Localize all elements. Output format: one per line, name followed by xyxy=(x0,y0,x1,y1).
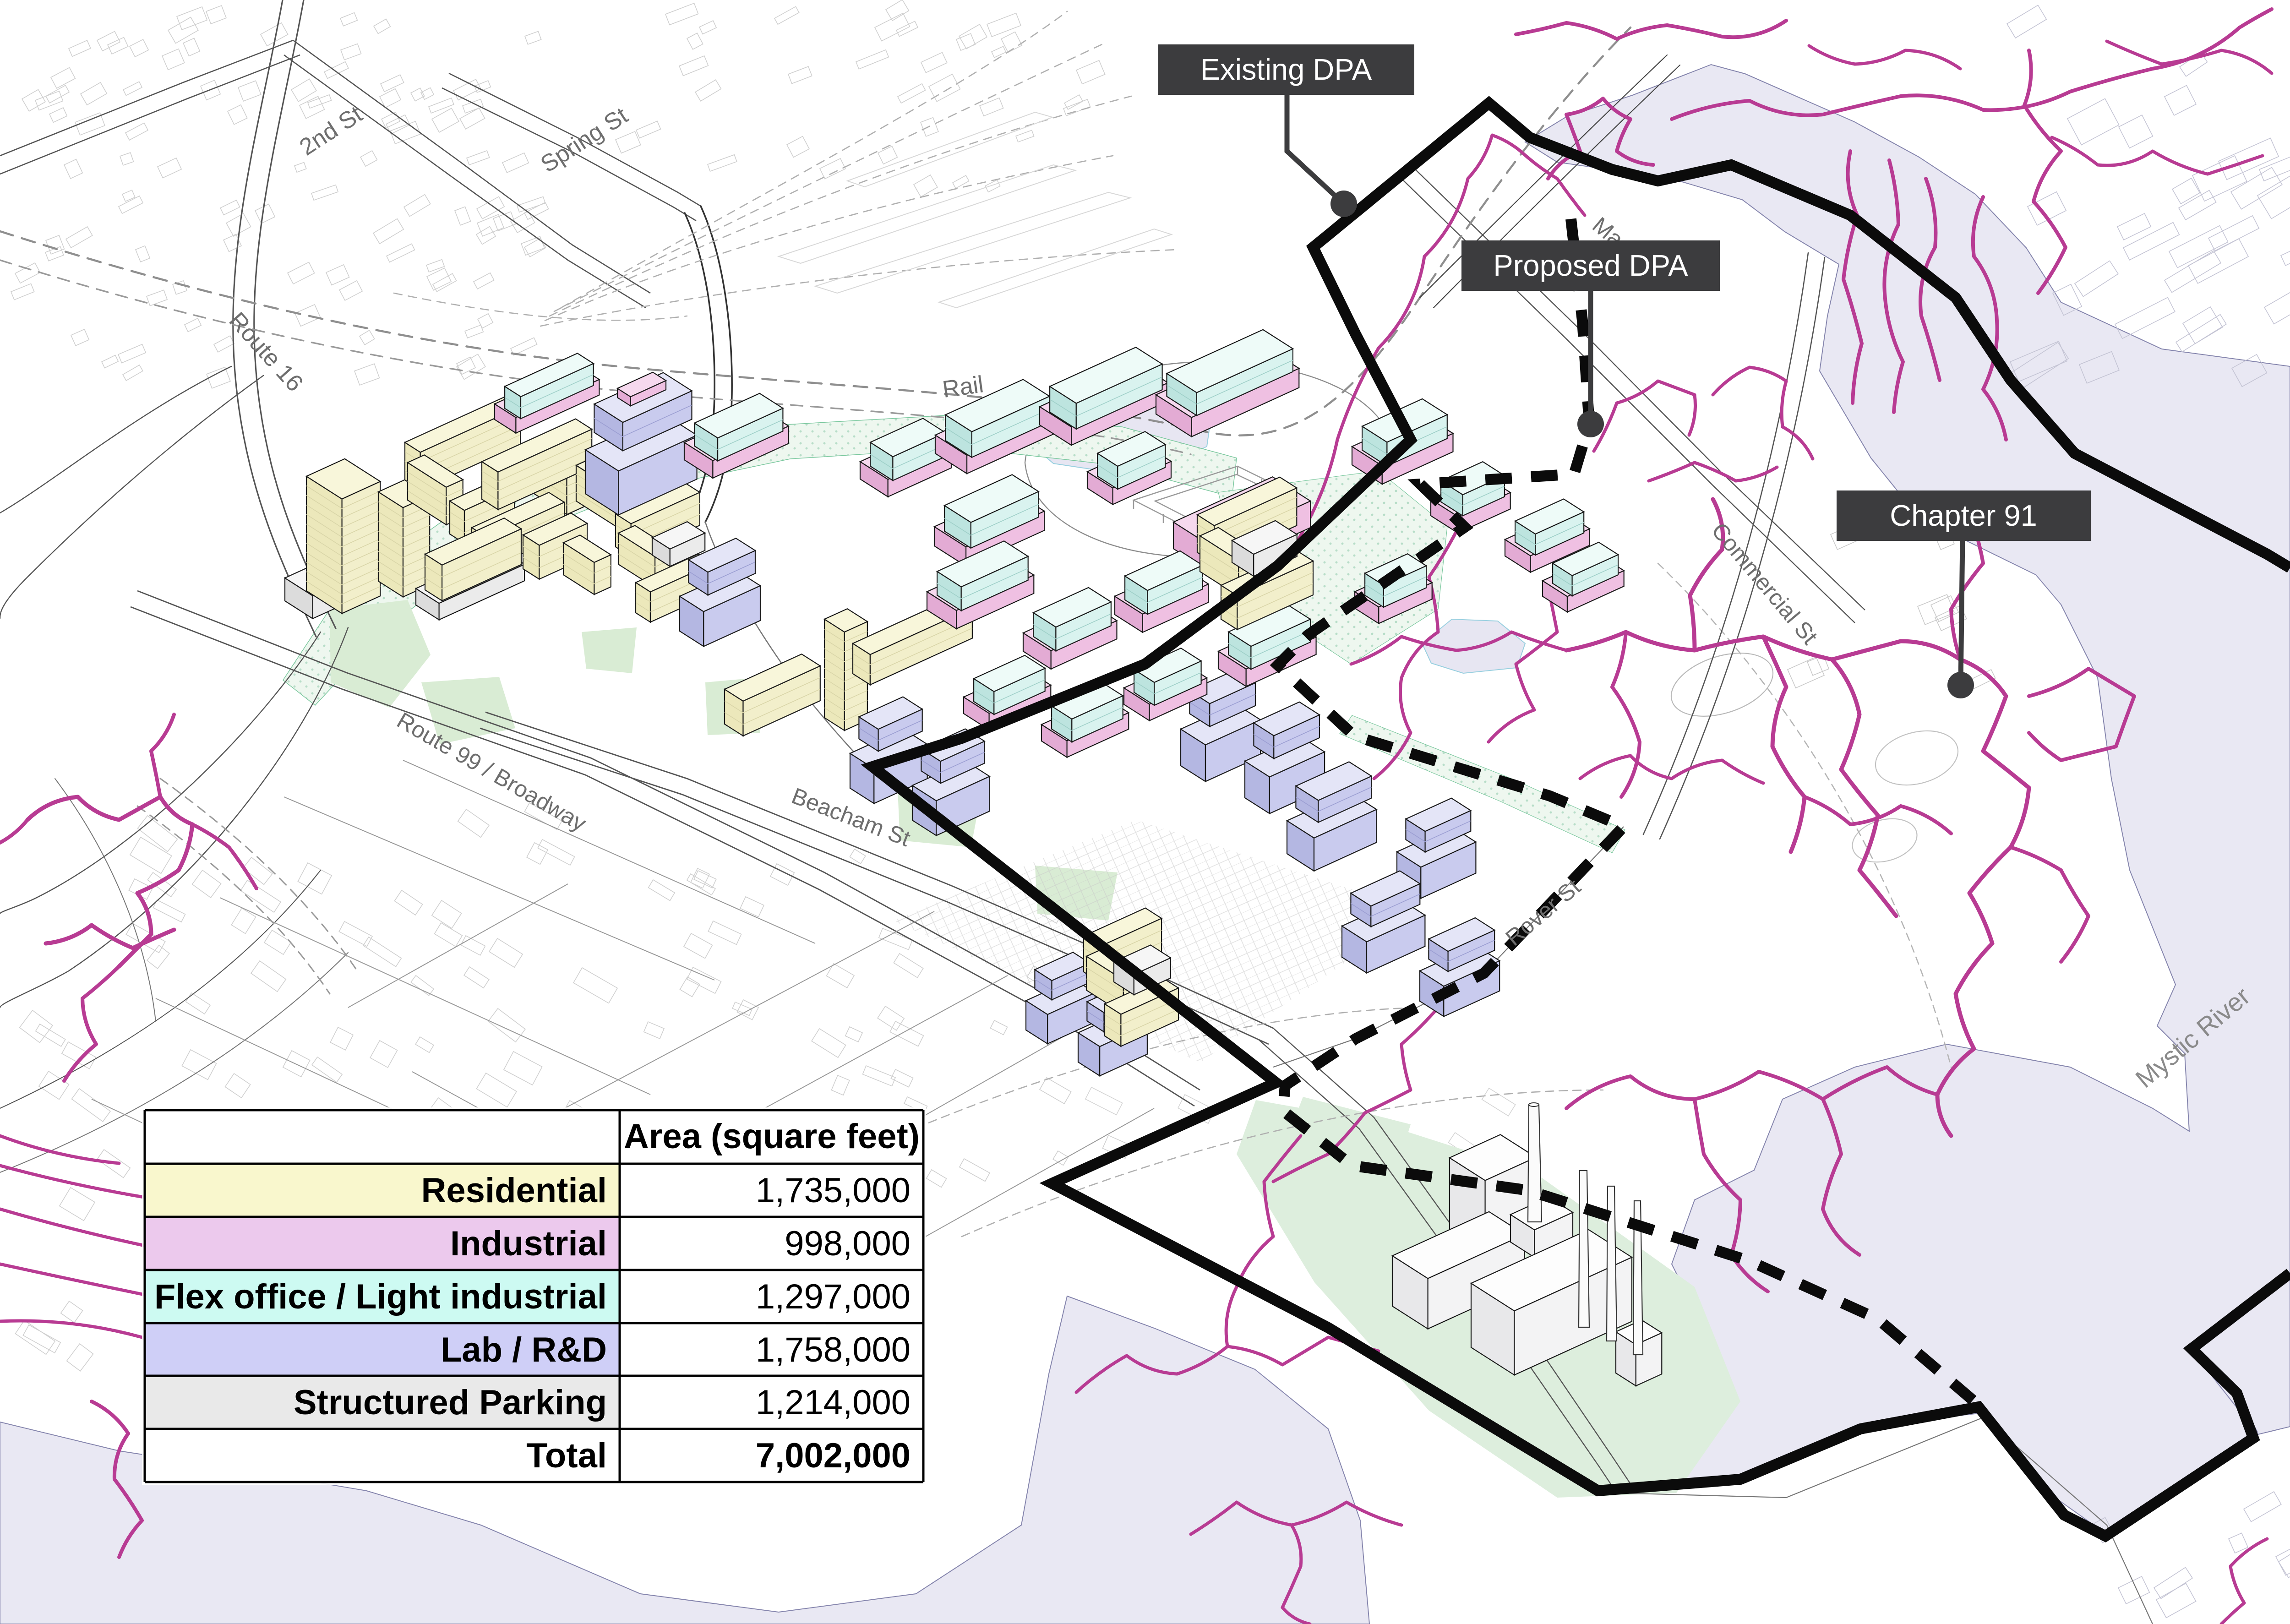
svg-text:Rail: Rail xyxy=(941,371,985,403)
svg-text:1,297,000: 1,297,000 xyxy=(756,1277,911,1316)
svg-text:7,002,000: 7,002,000 xyxy=(756,1436,911,1475)
svg-text:1,214,000: 1,214,000 xyxy=(756,1383,911,1422)
svg-text:Structured Parking: Structured Parking xyxy=(294,1383,607,1422)
svg-text:Total: Total xyxy=(526,1436,607,1475)
svg-text:Flex office / Light industrial: Flex office / Light industrial xyxy=(154,1277,607,1316)
svg-text:Area (square feet): Area (square feet) xyxy=(624,1117,920,1156)
svg-text:1,758,000: 1,758,000 xyxy=(756,1330,911,1369)
svg-text:Proposed DPA: Proposed DPA xyxy=(1493,249,1688,282)
svg-text:Existing DPA: Existing DPA xyxy=(1200,53,1372,86)
svg-text:Industrial: Industrial xyxy=(450,1224,607,1263)
svg-text:1,735,000: 1,735,000 xyxy=(756,1171,911,1210)
svg-text:Chapter 91: Chapter 91 xyxy=(1890,499,2037,532)
svg-text:Residential: Residential xyxy=(421,1171,607,1210)
svg-text:Lab / R&D: Lab / R&D xyxy=(441,1330,607,1369)
svg-text:998,000: 998,000 xyxy=(785,1224,911,1263)
